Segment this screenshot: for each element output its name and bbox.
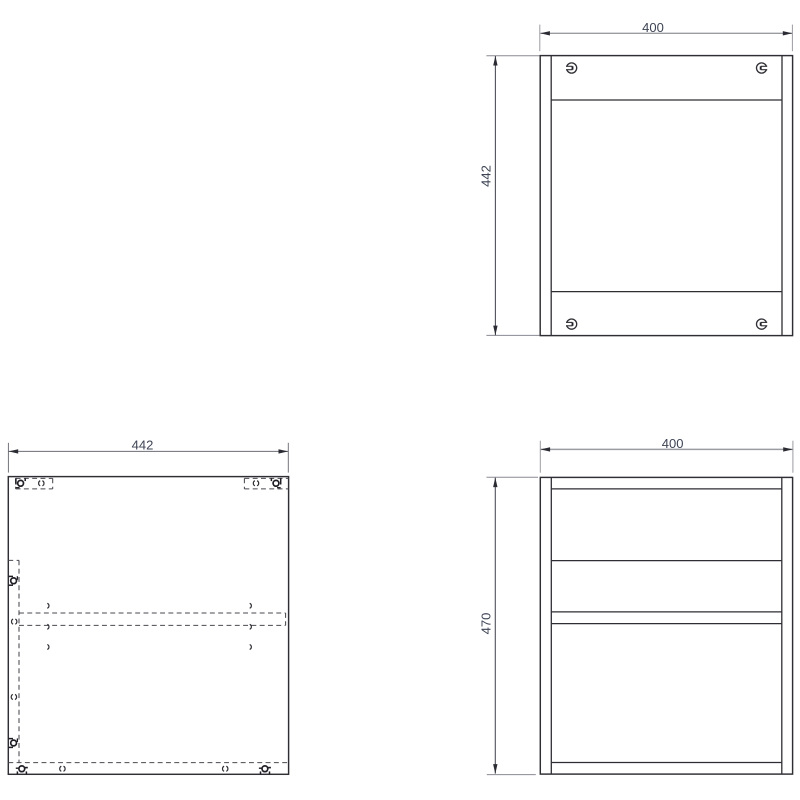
svg-text:470: 470 — [479, 613, 494, 635]
svg-text:442: 442 — [132, 438, 154, 453]
svg-text:400: 400 — [642, 20, 664, 35]
svg-text:442: 442 — [479, 165, 494, 187]
svg-text:400: 400 — [662, 436, 684, 451]
